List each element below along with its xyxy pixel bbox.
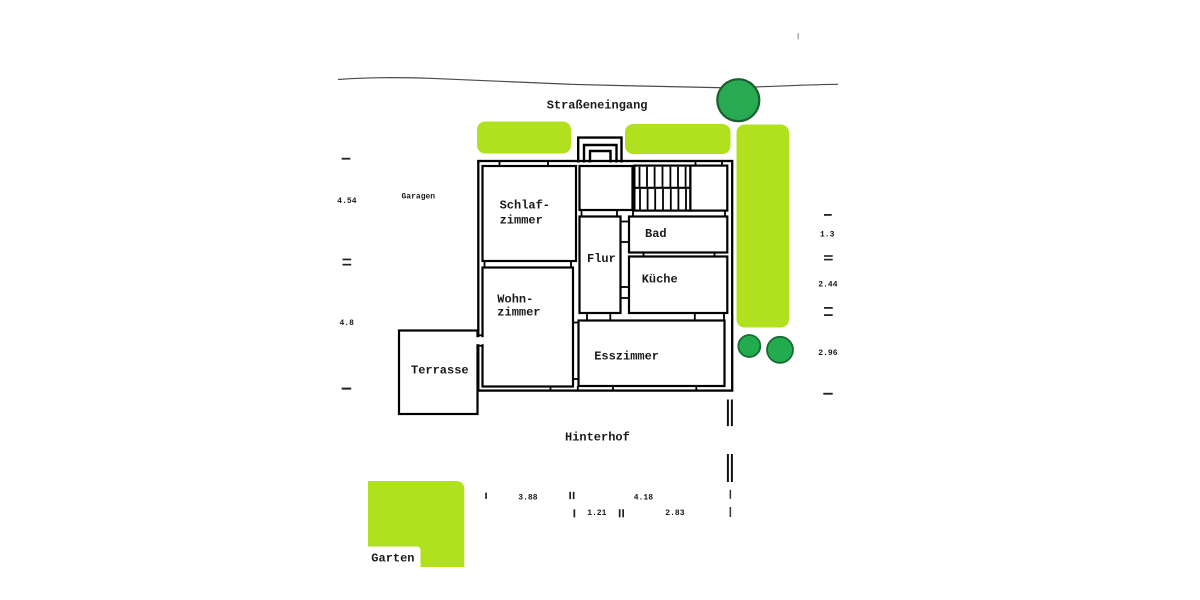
- svg-text:Wohn-: Wohn-: [497, 292, 533, 306]
- svg-text:zimmer: zimmer: [500, 213, 543, 227]
- svg-text:Küche: Küche: [642, 272, 678, 286]
- svg-text:2.44: 2.44: [818, 281, 837, 290]
- svg-text:4.54: 4.54: [337, 197, 356, 206]
- svg-text:Garten: Garten: [371, 552, 414, 566]
- svg-text:2.83: 2.83: [665, 509, 684, 518]
- svg-text:Schlaf-: Schlaf-: [500, 198, 550, 212]
- svg-text:4.8: 4.8: [340, 319, 355, 328]
- svg-text:Garagen: Garagen: [402, 192, 436, 201]
- svg-text:1.21: 1.21: [587, 509, 606, 518]
- svg-text:Bad: Bad: [645, 227, 667, 241]
- svg-text:Flur: Flur: [587, 252, 616, 266]
- svg-text:Hinterhof: Hinterhof: [565, 430, 630, 444]
- svg-text:2.96: 2.96: [818, 349, 837, 358]
- svg-text:3.88: 3.88: [518, 494, 537, 503]
- svg-text:4.18: 4.18: [634, 494, 653, 503]
- svg-text:1.3: 1.3: [820, 231, 835, 240]
- svg-text:Esszimmer: Esszimmer: [594, 350, 659, 364]
- svg-text:zimmer: zimmer: [497, 305, 540, 319]
- svg-text:Terrasse: Terrasse: [411, 364, 469, 378]
- svg-text:Straßeneingang: Straßeneingang: [547, 99, 648, 113]
